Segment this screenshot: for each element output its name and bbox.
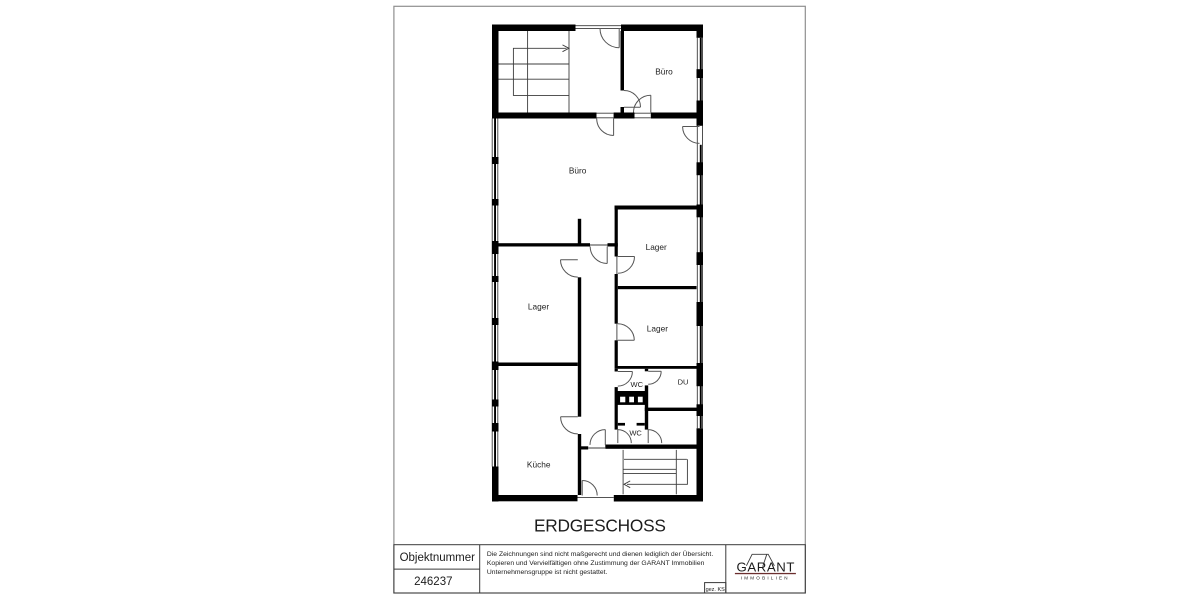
svg-text:246237: 246237 (414, 576, 452, 588)
svg-text:Die Zeichnungen sind nicht maß: Die Zeichnungen sind nicht maßgerecht un… (487, 550, 713, 558)
svg-text:WC: WC (629, 428, 642, 437)
svg-text:Objektnummer: Objektnummer (400, 552, 476, 564)
svg-text:gez. KS: gez. KS (706, 587, 726, 593)
svg-text:ERDGESCHOSS: ERDGESCHOSS (534, 516, 666, 536)
svg-text:Küche: Küche (527, 459, 551, 469)
svg-text:Unternehmensgruppe ist nicht g: Unternehmensgruppe ist nicht gestattet. (487, 569, 608, 576)
svg-text:GARANT: GARANT (737, 560, 796, 575)
svg-text:Kopieren und Vervielfältigen o: Kopieren und Vervielfältigen ohne Zustim… (487, 560, 705, 567)
svg-text:DU: DU (678, 377, 689, 386)
svg-text:Lager: Lager (528, 301, 549, 311)
svg-text:IMMOBILIEN: IMMOBILIEN (741, 575, 790, 580)
svg-text:Lager: Lager (647, 323, 668, 333)
svg-text:Lager: Lager (646, 242, 667, 252)
svg-text:Büro: Büro (655, 66, 673, 76)
svg-text:Büro: Büro (569, 165, 587, 175)
svg-text:WC: WC (631, 380, 644, 389)
